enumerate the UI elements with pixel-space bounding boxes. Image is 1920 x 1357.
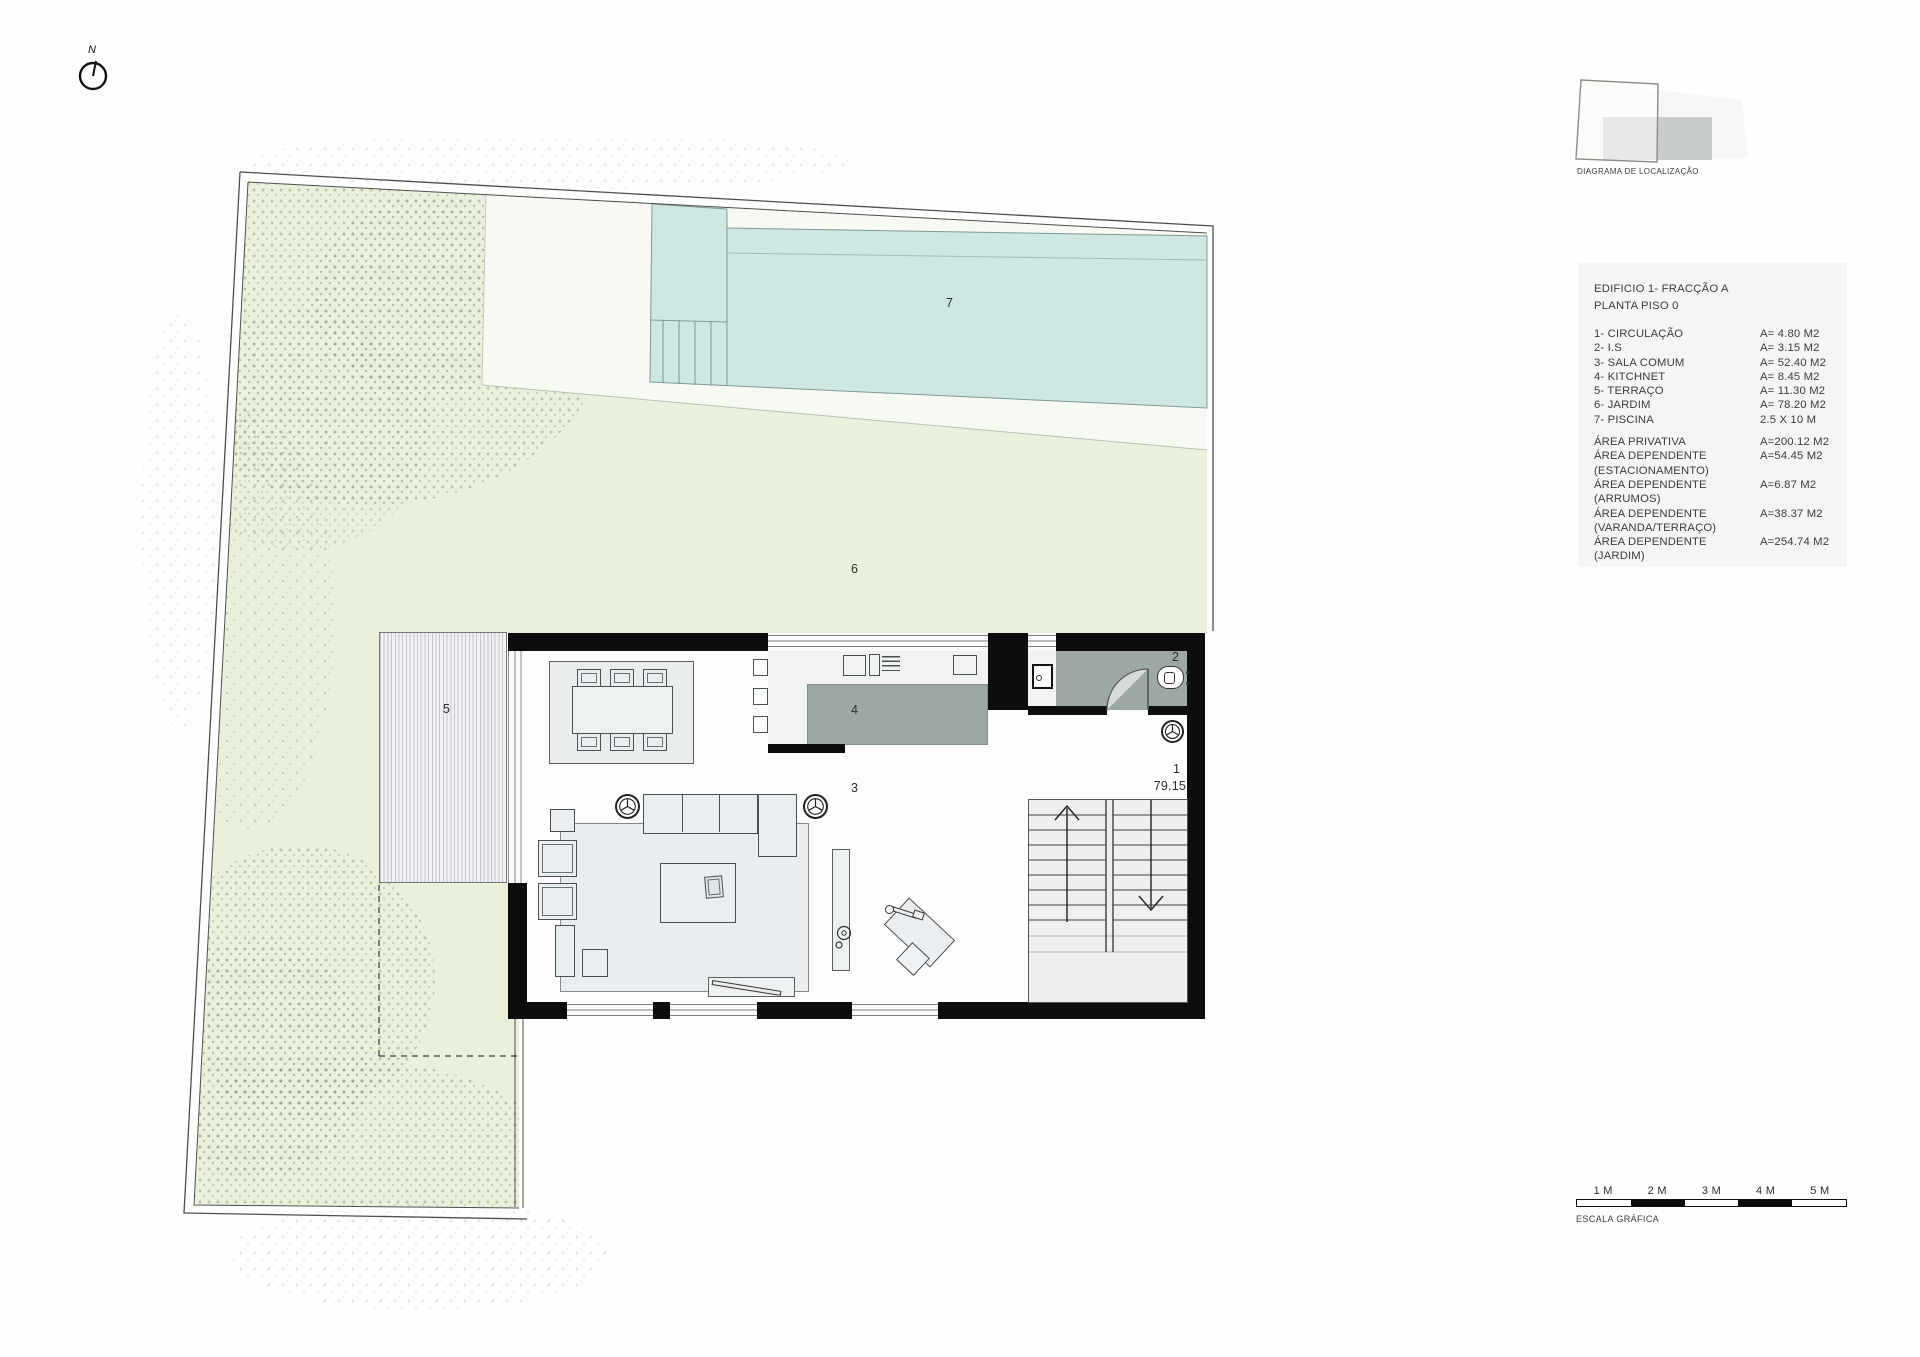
dining-chair (643, 669, 667, 687)
location-diagram-caption: DIAGRAMA DE LOCALIZAÇÃO (1577, 167, 1699, 176)
location-diagram (1570, 72, 1760, 167)
legend-room-row: 6- JARDIMA= 78.20 M2 (1594, 398, 1833, 412)
kitchen-window (768, 635, 988, 649)
room-area: A= 4.80 M2 (1760, 327, 1820, 341)
toilet-dot (1186, 682, 1189, 685)
room-area: A= 52.40 M2 (1760, 356, 1826, 370)
armchair (538, 840, 577, 877)
wall (653, 1002, 670, 1019)
legend-title-line2: PLANTA PISO 0 (1594, 298, 1833, 315)
area-label: ÁREA PRIVATIVA (1594, 435, 1760, 449)
legend-room-row: 7- PISCINA2.5 X 10 M (1594, 413, 1833, 427)
stair-treads (1029, 800, 1187, 1002)
area-value: A=54.45 M2 (1760, 449, 1823, 463)
window (670, 1004, 757, 1016)
wall (988, 633, 1028, 710)
cooktop-icon (843, 655, 866, 676)
floor-lamp-icon (832, 920, 854, 954)
wall (1187, 633, 1205, 1019)
legend-area-row: ÁREA DEPENDENTE (VARANDA/TERRAÇO)A=38.37… (1594, 507, 1833, 536)
scale-bar-strip (1576, 1199, 1847, 1207)
wall (1056, 633, 1205, 651)
wall (1028, 706, 1107, 715)
wall-fixture (1032, 664, 1053, 689)
scale-tick-label: 5 M (1793, 1185, 1847, 1197)
area-label: ÁREA DEPENDENTE (ARRUMOS) (1594, 478, 1760, 507)
side-table (555, 925, 575, 977)
scale-bar: 1 M 2 M 3 M 4 M 5 M ESCALA GRÁFICA (1576, 1185, 1847, 1224)
side-table (582, 949, 608, 977)
legend-room-row: 4- KITCHNETA= 8.45 M2 (1594, 370, 1833, 384)
legend-title-line1: EDIFICIO 1- FRACÇÃO A (1594, 281, 1833, 298)
wall (757, 1002, 852, 1019)
room-area: A= 8.45 M2 (1760, 370, 1820, 384)
terrace-sliding-door (508, 651, 527, 883)
window (567, 1004, 653, 1016)
ceiling-lamp-icon (614, 793, 641, 820)
armchair (538, 883, 577, 920)
room-label: 6- JARDIM (1594, 398, 1760, 412)
area-value: A=38.37 M2 (1760, 507, 1823, 521)
legend-area-row: ÁREA DEPENDENTE (JARDIM)A=254.74 M2 (1594, 535, 1833, 564)
toilet-icon (1157, 666, 1184, 689)
room-label: 4- KITCHNET (1594, 370, 1760, 384)
bar-stool (753, 659, 768, 676)
room-label: 2- I.S (1594, 341, 1760, 355)
scale-tick-label: 3 M (1684, 1185, 1738, 1197)
bathroom-window (1028, 635, 1056, 649)
wall (508, 883, 527, 1019)
area-value: A=254.74 M2 (1760, 535, 1829, 549)
legend-room-row: 2- I.SA= 3.15 M2 (1594, 341, 1833, 355)
room-area: A= 78.20 M2 (1760, 398, 1826, 412)
sofa (643, 794, 758, 834)
appliance-icon (869, 654, 880, 676)
label-terrace: 5 (443, 702, 450, 716)
scale-tick-label: 1 M (1576, 1185, 1630, 1197)
dining-chair (610, 733, 634, 751)
stair-down-arrow (1139, 800, 1163, 910)
room-label: 3- SALA COMUM (1594, 356, 1760, 370)
label-floor-level: 79.15 (1146, 779, 1186, 793)
ceiling-lamp-icon (802, 793, 829, 820)
room-label: 5- TERRAÇO (1594, 384, 1760, 398)
label-pool: 7 (946, 296, 953, 310)
sink-icon (953, 655, 977, 675)
area-label: ÁREA DEPENDENTE (VARANDA/TERRAÇO) (1594, 507, 1760, 536)
area-value: A=6.87 M2 (1760, 478, 1816, 492)
sofa-chaise (758, 794, 797, 857)
scale-bar-caption: ESCALA GRÁFICA (1576, 1214, 1847, 1224)
scale-tick-label: 2 M (1630, 1185, 1684, 1197)
label-living-room: 3 (851, 781, 858, 795)
staircase (1028, 799, 1188, 1003)
label-bathroom: 2 (1172, 650, 1179, 664)
legend-room-row: 1- CIRCULAÇÃOA= 4.80 M2 (1594, 327, 1833, 341)
legend-room-row: 5- TERRAÇOA= 11.30 M2 (1594, 384, 1833, 398)
bathroom-door (1100, 658, 1160, 714)
bar-stool (753, 716, 768, 733)
label-garden: 6 (851, 562, 858, 576)
terrace-deck (379, 632, 507, 883)
dining-chair (577, 733, 601, 751)
room-label: 1- CIRCULAÇÃO (1594, 327, 1760, 341)
area-value: A=200.12 M2 (1760, 435, 1829, 449)
kitchen-counter (807, 684, 988, 745)
dining-chair (577, 669, 601, 687)
vent-grill-icon (882, 656, 900, 672)
legend-area-row: ÁREA DEPENDENTE (ESTACIONAMENTO)A=54.45 … (1594, 449, 1833, 478)
toilet-dot (1186, 671, 1189, 674)
location-lot-outline (1576, 80, 1658, 162)
scale-labels: 1 M 2 M 3 M 4 M 5 M (1576, 1185, 1847, 1197)
ceiling-lamp-icon (1160, 719, 1185, 744)
wall (768, 744, 845, 753)
wall (508, 1002, 567, 1019)
room-label: 7- PISCINA (1594, 413, 1760, 427)
legend-area-row: ÁREA DEPENDENTE (ARRUMOS)A=6.87 M2 (1594, 478, 1833, 507)
dining-table (572, 686, 673, 734)
dining-chair (610, 669, 634, 687)
side-table (550, 809, 575, 832)
legend-panel: EDIFICIO 1- FRACÇÃO A PLANTA PISO 0 1- C… (1578, 263, 1847, 567)
room-area: A= 3.15 M2 (1760, 341, 1820, 355)
table-decor (704, 875, 724, 898)
label-hall: 1 (1173, 762, 1180, 776)
dining-chair (643, 733, 667, 751)
desk-lamp-base (885, 905, 894, 914)
room-area: A= 11.30 M2 (1760, 384, 1825, 398)
window (852, 1004, 938, 1016)
floor-plan-canvas: N (0, 0, 1920, 1357)
bar-stool (753, 688, 768, 705)
room-area: 2.5 X 10 M (1760, 413, 1816, 427)
label-kitchen: 4 (851, 703, 858, 717)
legend-room-row: 3- SALA COMUMA= 52.40 M2 (1594, 356, 1833, 370)
coffee-table (660, 863, 736, 923)
pool (650, 204, 1207, 408)
wall (938, 1002, 1205, 1019)
legend-area-row: ÁREA PRIVATIVAA=200.12 M2 (1594, 435, 1833, 449)
area-label: ÁREA DEPENDENTE (JARDIM) (1594, 535, 1760, 564)
scale-tick-label: 4 M (1739, 1185, 1793, 1197)
wall (508, 633, 768, 651)
area-label: ÁREA DEPENDENTE (ESTACIONAMENTO) (1594, 449, 1760, 478)
